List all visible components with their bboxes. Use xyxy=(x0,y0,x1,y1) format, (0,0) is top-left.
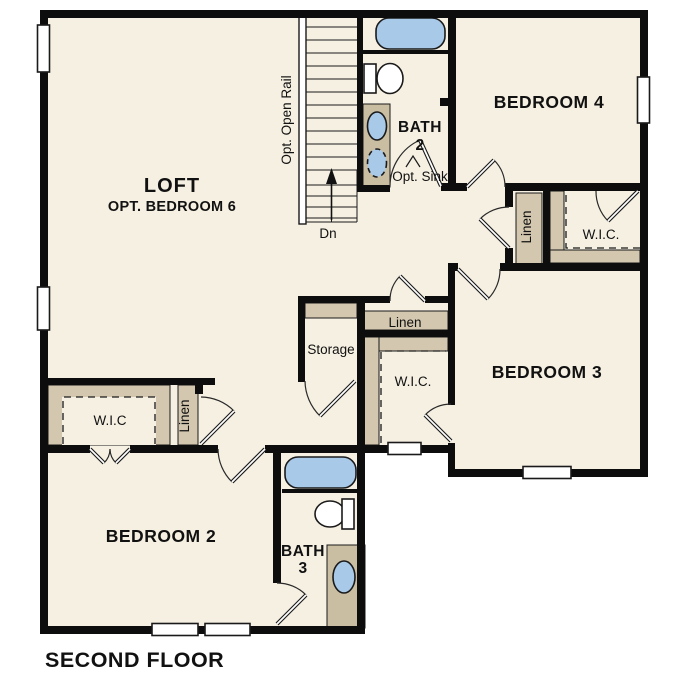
label-wic-left: W.I.C xyxy=(94,413,127,428)
room-label-bath-2-number: 2 xyxy=(415,137,424,154)
bath3-sink xyxy=(333,561,355,593)
window-bedroom2-right xyxy=(205,624,250,636)
bath2-tub xyxy=(376,18,445,49)
label-linen-left: Linen xyxy=(177,399,192,432)
label-linen-right: Linen xyxy=(519,210,534,243)
room-label-bedroom-2: BEDROOM 2 xyxy=(106,526,216,546)
plan-title: SECOND FLOOR xyxy=(45,648,224,672)
label-wic-middle: W.I.C. xyxy=(395,374,432,389)
window-wic-middle xyxy=(388,443,421,455)
window-loft-lower xyxy=(38,287,50,330)
window-bedroom4 xyxy=(638,77,650,123)
bath2-toilet-bowl xyxy=(377,64,403,94)
floor-plan-canvas: LOFT OPT. BEDROOM 6 BEDROOM 4 BEDROOM 3 … xyxy=(0,0,687,687)
bath2-toilet-tank xyxy=(364,64,376,93)
label-stairs-down: Dn xyxy=(319,226,336,241)
label-linen-middle: Linen xyxy=(388,315,421,330)
floor-plan: LOFT OPT. BEDROOM 6 BEDROOM 4 BEDROOM 3 … xyxy=(0,0,687,687)
room-label-bath-3: BATH xyxy=(281,543,325,560)
room-label-bath-2: BATH xyxy=(398,119,442,136)
room-label-loft: LOFT xyxy=(144,175,200,197)
window-loft-upper xyxy=(38,25,50,72)
bath2-optional-sink xyxy=(368,149,387,177)
bath3-toilet-tank xyxy=(342,499,354,529)
room-label-bedroom-4: BEDROOM 4 xyxy=(494,92,604,112)
label-opt-sink: Opt. Sink xyxy=(392,169,448,184)
bath3-tub xyxy=(285,457,356,488)
bath3-toilet-bowl xyxy=(315,501,345,527)
window-bedroom3 xyxy=(523,467,571,479)
room-label-bath-3-number: 3 xyxy=(298,560,307,577)
label-wic-right: W.I.C. xyxy=(583,227,620,242)
bath2-sink xyxy=(368,112,387,140)
label-opt-open-rail: Opt. Open Rail xyxy=(279,75,294,164)
room-label-loft-option: OPT. BEDROOM 6 xyxy=(108,199,236,215)
room-label-bedroom-3: BEDROOM 3 xyxy=(492,362,602,382)
storage-closet xyxy=(305,303,357,318)
window-bedroom2-left xyxy=(152,624,198,636)
label-storage: Storage xyxy=(307,342,354,357)
